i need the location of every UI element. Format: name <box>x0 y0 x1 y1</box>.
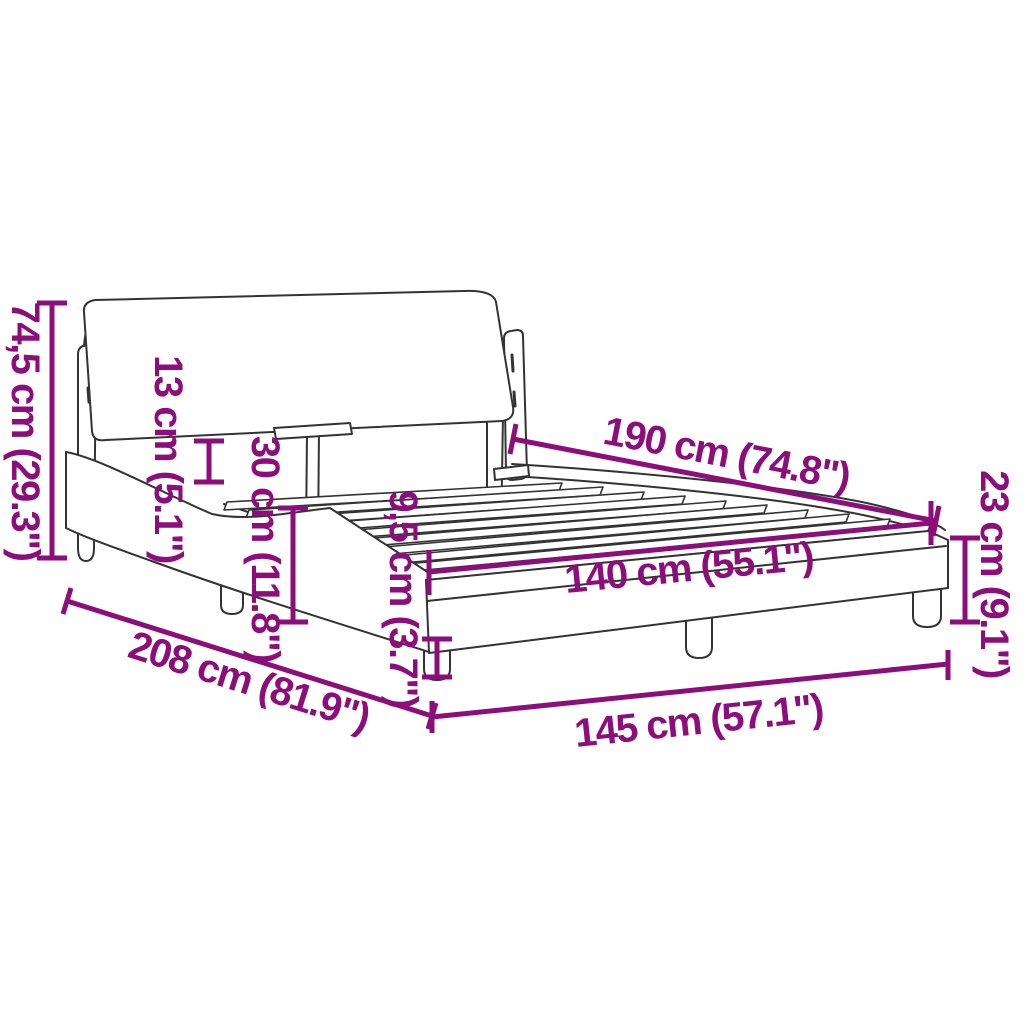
dimension-label: 23 cm (9.1") <box>972 470 1016 678</box>
dimension-label: 13 cm (5.1") <box>146 355 190 563</box>
panel-slot-mark <box>512 355 513 371</box>
dimension-label: 9,5 cm (3.7") <box>381 490 425 708</box>
dimension-total-height: 74,5 cm (29.3") <box>3 302 67 561</box>
dimension-total-width: 145 cm (57.1") <box>432 650 948 756</box>
bed-dimension-drawing: 74,5 cm (29.3") 13 cm (5.1") 30 cm (11.8… <box>0 0 1024 1024</box>
panel-slot-mark <box>514 392 515 406</box>
dimension-label: 74,5 cm (29.3") <box>3 302 47 561</box>
dimension-end-tick <box>933 506 939 536</box>
dimension-diagram: 74,5 cm (29.3") 13 cm (5.1") 30 cm (11.8… <box>0 0 1024 1024</box>
dimension-label: 30 cm (11.8") <box>243 436 287 662</box>
dimension-frame-height: 23 cm (9.1") <box>950 470 1016 678</box>
